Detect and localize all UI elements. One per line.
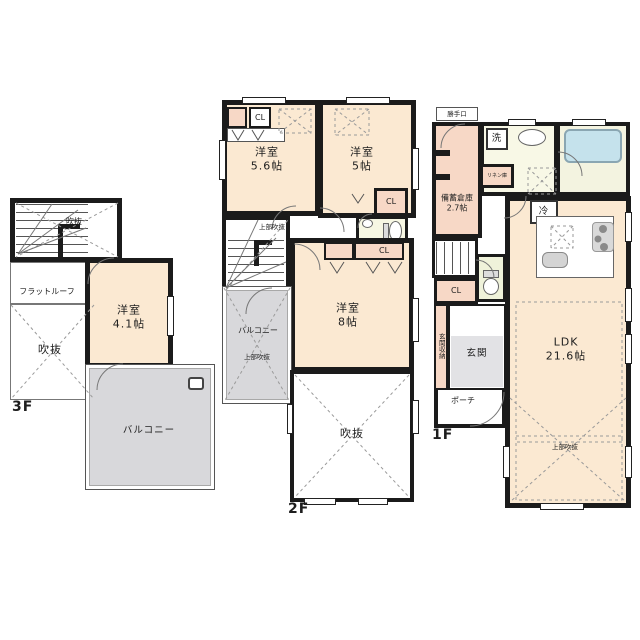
f3-flat-roof: [10, 262, 95, 304]
f1-closet-label: CL: [451, 286, 461, 296]
f1-window-right-3: [625, 334, 632, 364]
f2-room-a-label: 洋室5.6帖: [251, 146, 284, 175]
f1-pantry-shelf2: [436, 174, 450, 180]
f2-closet-c: [324, 242, 404, 260]
toilet-tank-icon: [383, 223, 389, 239]
f2-window-left-a: [219, 140, 226, 180]
f1-pantry: [432, 122, 482, 238]
f2-void-label: 吹抜: [340, 427, 364, 441]
f1-porch-label: ポーチ: [451, 396, 475, 406]
slop-sink-icon: [188, 377, 204, 390]
f1-window-wash-top: [508, 119, 536, 126]
toilet-icon-1f: [483, 278, 499, 295]
f2-closet-a: [227, 107, 247, 128]
f2-window-right-c: [412, 298, 419, 342]
f3-stairs: [16, 204, 88, 256]
f2-balcony-note-label: 上部吹抜: [244, 353, 270, 361]
washbasin-oval-icon: [518, 129, 546, 146]
f2-window-void-left: [287, 404, 293, 434]
f1-floor-label: 1F: [432, 427, 453, 443]
f1-entrance-label: 玄関: [466, 348, 487, 360]
f1-void-note-label: 上部吹抜: [552, 443, 578, 451]
f3-void-label: 吹抜: [38, 343, 62, 357]
f1-pantry-shelf1: [436, 150, 450, 156]
f1-window-left-void: [503, 446, 510, 478]
f2-window-right-b: [412, 148, 419, 190]
f1-window-right-1: [625, 212, 632, 242]
f1-window-bottom: [540, 503, 584, 510]
f2-stair-wall-h: [254, 240, 272, 245]
toilet-tank-icon-1f: [483, 270, 499, 278]
f2-closet-shelf: [227, 128, 285, 142]
f1-stairs: [436, 242, 474, 274]
f2-window-void-right: [412, 400, 419, 434]
f3-room-label: 洋室4.1帖: [113, 304, 146, 333]
f1-window-bath-top: [572, 119, 606, 126]
f1-entrance-floor: [451, 336, 503, 387]
f3-room-window: [167, 296, 174, 336]
f1-fridge-label: 冷: [539, 206, 550, 218]
stove-icon: [592, 222, 614, 252]
f2-window-top-a: [242, 97, 286, 104]
f3-floor-label: 3F: [12, 399, 33, 415]
f3-balcony-label: バルコニー: [123, 425, 175, 437]
sink-icon: [542, 252, 568, 268]
f2-closet-c-label: CL: [379, 246, 389, 256]
f2-closet-b-label: CL: [386, 197, 396, 207]
f1-ldk-label: LDK21.6帖: [546, 336, 587, 365]
f1-window-right-2: [625, 288, 632, 322]
f2-stair-note-label: 上部吹抜: [259, 223, 285, 231]
f2-room-c-label: 洋室8帖: [336, 302, 360, 331]
f1-entrance-storage-label: 玄関収納: [437, 333, 445, 359]
f2-balcony-label: バルコニー: [238, 326, 278, 336]
f2-window-top-b: [346, 97, 390, 104]
f1-back-door-label: 勝手口: [447, 110, 467, 118]
f2-floor-label: 2F: [288, 501, 309, 517]
f1-window-right-4: [625, 446, 632, 478]
f1-pantry-label: 備蓄倉庫2.7帖: [441, 194, 473, 215]
f1-linen-label: リネン庫: [487, 173, 507, 180]
f2-room-b-label: 洋室5帖: [350, 146, 374, 175]
bathtub-icon: [564, 129, 622, 163]
f1-washer-label: 洗: [492, 133, 503, 145]
f3-stair-void-label: 吹抜: [66, 217, 82, 227]
washbasin-icon: [362, 219, 373, 228]
f2-closet-a-label: CL: [255, 113, 265, 123]
f2-closet-c-divider: [352, 242, 356, 260]
f2-window-void-bottom2: [358, 498, 388, 505]
floorplan-canvas: 吹抜 フラットルーフ 吹抜 洋室4.1帖 バルコニー 3F CL 洋室5.6帖 …: [0, 0, 640, 640]
f2-balcony: [222, 286, 292, 404]
f3-flat-roof-label: フラットルーフ: [19, 287, 75, 297]
